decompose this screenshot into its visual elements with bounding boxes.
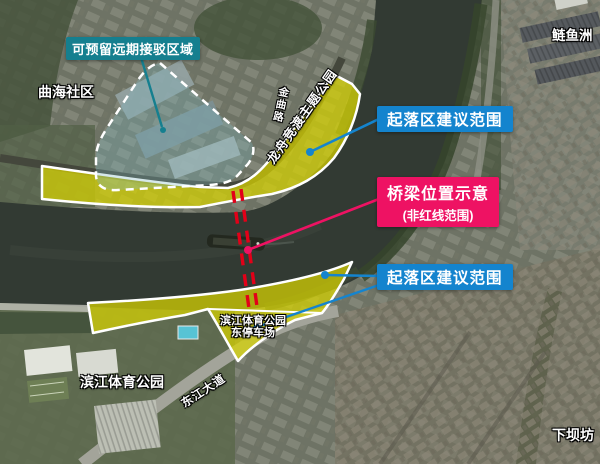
east-parking-line1: 滨江体育公园 — [218, 316, 288, 328]
marker-dot — [321, 271, 329, 279]
lianyuzhou-label: 鲢鱼洲 — [552, 29, 593, 44]
east-parking-label: 滨江体育公园 东停车场 — [218, 316, 288, 339]
bridge-tag-subtitle: (非红线范围) — [387, 205, 489, 224]
marker-dot — [306, 148, 314, 156]
marker-dot — [160, 127, 166, 133]
xiabafang-label: 下坝坊 — [552, 428, 594, 443]
marker-dot — [244, 246, 252, 254]
quhai-community-label: 曲海社区 — [38, 85, 94, 100]
reserve-area-tag: 可预留远期接驳区域 — [66, 37, 200, 60]
east-parking-line2: 东停车场 — [218, 328, 288, 340]
annotated-satellite-map: 可预留远期接驳区域 曲海社区 鲢鱼洲 起落区建议范围 桥梁位置示意 (非红线范围… — [0, 0, 600, 464]
satellite-basemap — [0, 0, 600, 464]
bridge-position-tag: 桥梁位置示意 (非红线范围) — [377, 177, 499, 227]
bridge-tag-title: 桥梁位置示意 — [387, 180, 489, 204]
landing-zone-north-tag: 起落区建议范围 — [377, 106, 513, 132]
landing-zone-south-tag: 起落区建议范围 — [377, 264, 513, 290]
sports-park-label: 滨江体育公园 — [80, 375, 164, 390]
swimming-pool — [178, 326, 198, 339]
landing-south-leader-line — [325, 275, 379, 276]
